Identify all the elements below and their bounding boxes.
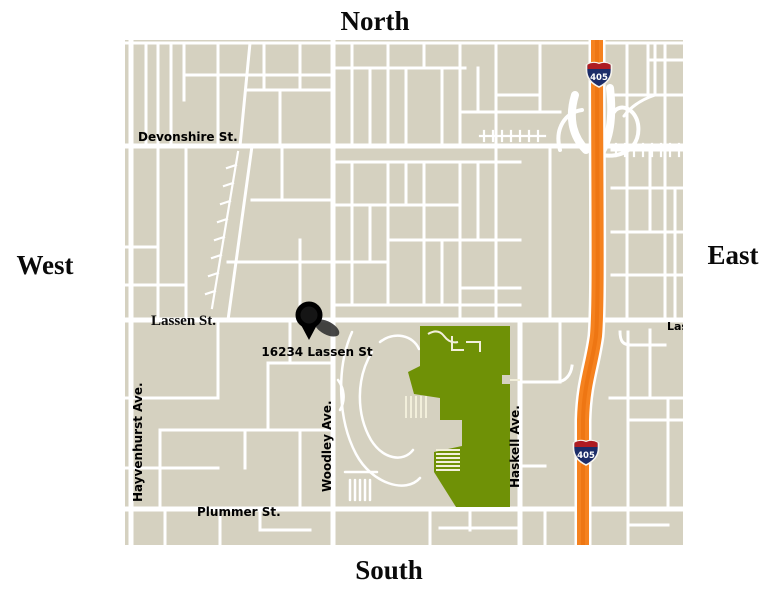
street-map: 405 405 Devonshire St. Plummer St. Las H…	[125, 40, 688, 545]
compass-south-label: South	[355, 555, 423, 585]
street-label-lassen: Lassen St.	[151, 313, 216, 329]
street-label-woodley: Woodley Ave.	[320, 400, 334, 492]
marker-address-label: 16234 Lassen St	[261, 345, 372, 359]
shield-number: 405	[590, 73, 608, 83]
map-figure: 405 405 Devonshire St. Plummer St. Las H…	[0, 0, 781, 591]
street-label-haskell: Haskell Ave.	[508, 405, 522, 488]
compass-east-label: East	[707, 240, 758, 270]
marker-pin-icon	[298, 304, 320, 326]
street-label-devonshire: Devonshire St.	[138, 130, 238, 144]
shield-number: 405	[577, 451, 595, 461]
street-label-plummer: Plummer St.	[197, 505, 281, 519]
street-label-hayvenhurst: Hayvenhurst Ave.	[131, 382, 145, 502]
street-label-lassen-truncated: Las	[667, 320, 688, 333]
compass-west-label: West	[17, 250, 74, 280]
compass-north-label: North	[341, 6, 410, 36]
